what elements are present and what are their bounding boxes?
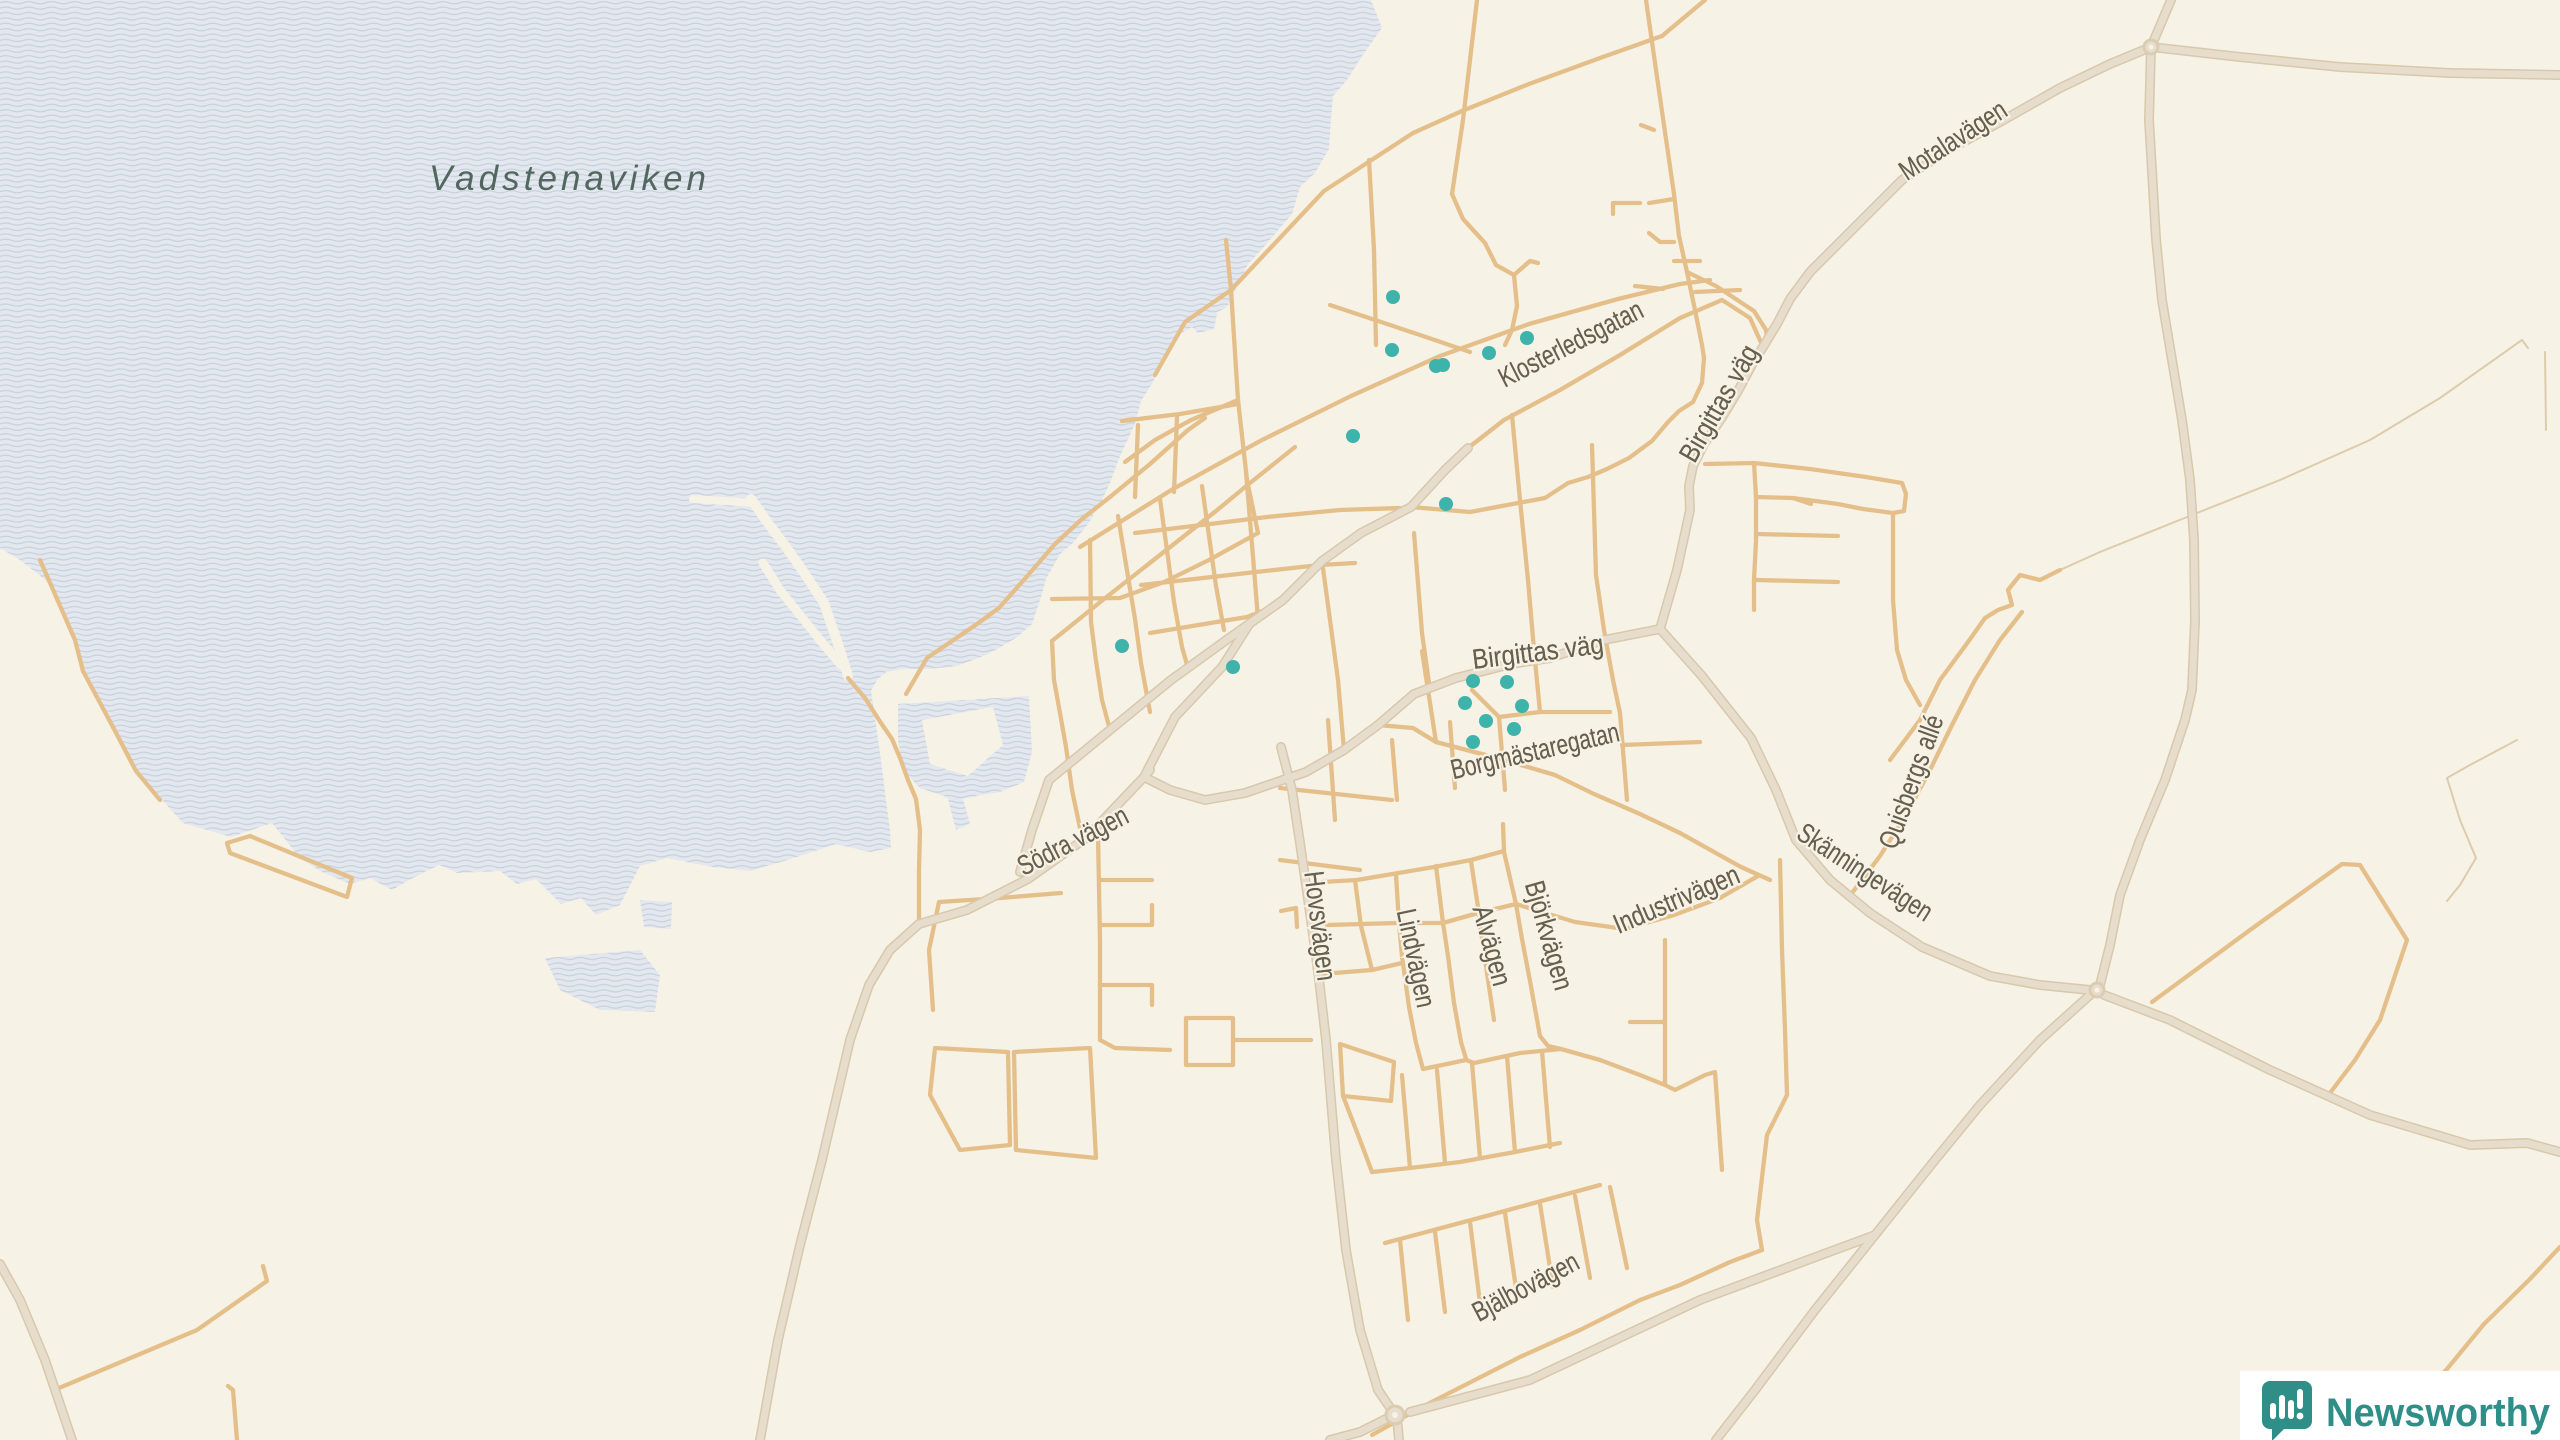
svg-text:Newsworthy: Newsworthy: [2326, 1391, 2551, 1435]
svg-text:Vadstenaviken: Vadstenaviken: [429, 159, 715, 198]
